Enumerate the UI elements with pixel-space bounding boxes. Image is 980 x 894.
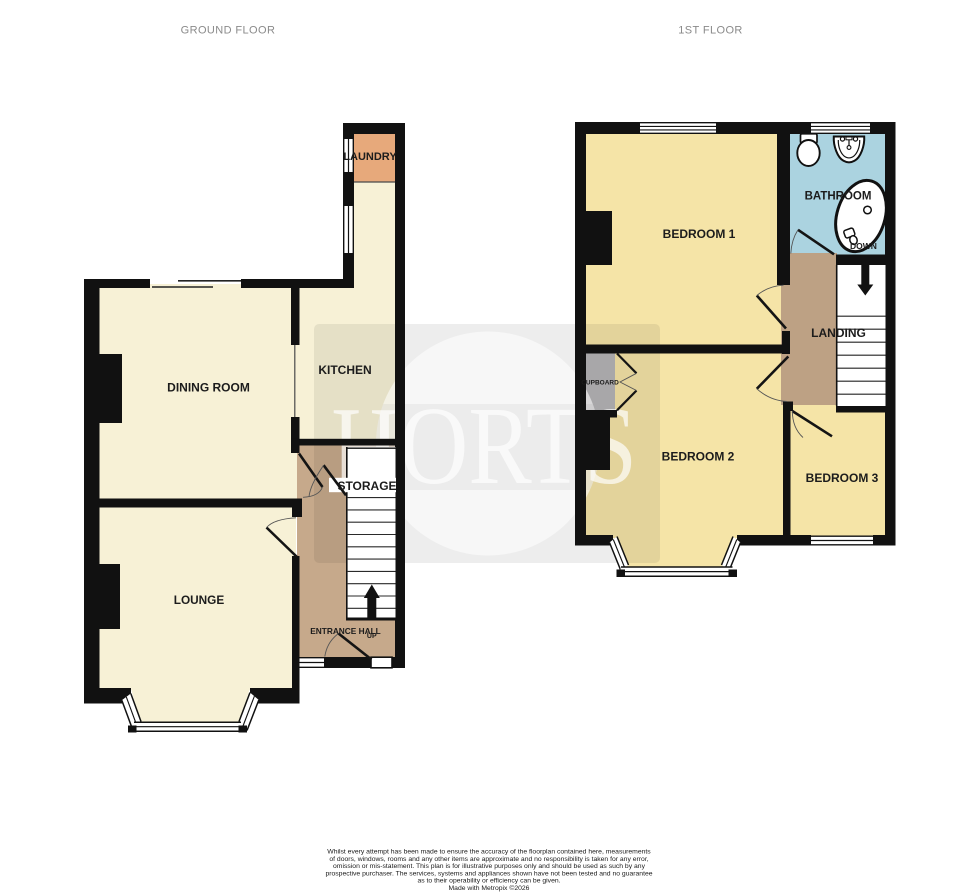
svg-text:LOUNGE: LOUNGE <box>174 593 225 607</box>
svg-text:omission or mis-statement. Thi: omission or mis-statement. This plan is … <box>333 863 646 870</box>
svg-text:Made with Metropix ©2026: Made with Metropix ©2026 <box>449 884 530 892</box>
svg-text:as to their operability or eff: as to their operability or efficiency ca… <box>417 878 560 885</box>
svg-text:BATHROOM: BATHROOM <box>805 191 872 203</box>
svg-text:BEDROOM 2: BEDROOM 2 <box>662 450 735 464</box>
svg-text:Whilst every attempt has been: Whilst every attempt has been made to en… <box>327 849 651 856</box>
svg-text:GROUND FLOOR: GROUND FLOOR <box>181 25 276 37</box>
svg-text:1ST FLOOR: 1ST FLOOR <box>678 25 743 37</box>
svg-text:CUPBOARD: CUPBOARD <box>581 380 619 387</box>
svg-text:of doors, windows, rooms and a: of doors, windows, rooms and any other i… <box>329 856 648 863</box>
svg-text:prospective purchaser. The ser: prospective purchaser. The services, sys… <box>325 870 652 877</box>
svg-text:LAUNDRY: LAUNDRY <box>343 151 397 163</box>
svg-text:LANDING: LANDING <box>811 326 866 340</box>
svg-text:KITCHEN: KITCHEN <box>318 363 371 377</box>
svg-text:DOWN: DOWN <box>850 241 877 251</box>
svg-text:DINING ROOM: DINING ROOM <box>167 381 250 395</box>
svg-text:BEDROOM 1: BEDROOM 1 <box>663 227 736 241</box>
svg-text:STORAGE: STORAGE <box>337 479 396 493</box>
svg-text:BEDROOM 3: BEDROOM 3 <box>806 471 879 485</box>
svg-text:UP: UP <box>367 633 377 640</box>
